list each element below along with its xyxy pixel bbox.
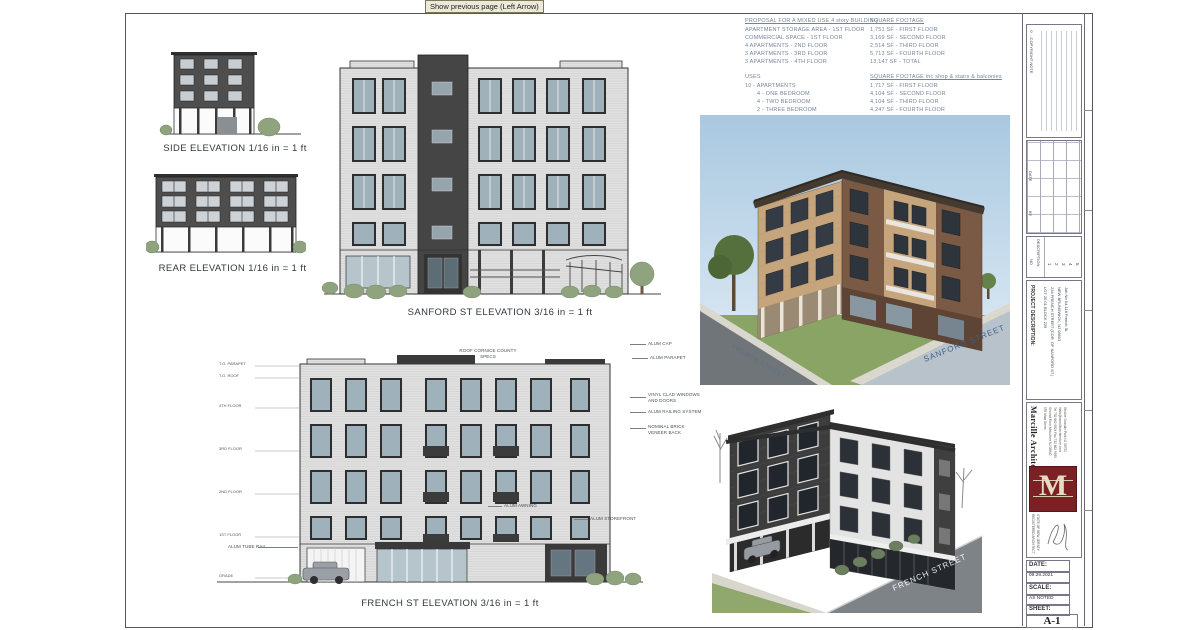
copyright-fine-print xyxy=(1041,31,1077,131)
copyright-note-box: © - COPYRIGHT NOTE xyxy=(1026,24,1082,138)
firm-address-line: Tel 732 662 0824 Fax 732 662 9935 xyxy=(1053,407,1057,458)
copyright-note-label: © - COPYRIGHT NOTE xyxy=(1029,29,1034,73)
project-description-heading: PROJECT DESCRIPTION: xyxy=(1029,285,1035,346)
titleblock-divider xyxy=(1022,13,1023,626)
note-line: 4 - TWO BEDROOM xyxy=(757,98,867,106)
drawing-sheet-viewer: Show previous page (Left Arrow) PROPOSAL… xyxy=(0,0,1200,630)
project-line: 234 FRENCH STREET (COR. OF SANFORD ST.) xyxy=(1050,287,1055,376)
side-elevation-caption: SIDE ELEVATION 1/16 in = 1 ft xyxy=(150,143,320,154)
french-elevation-drawing: T.O. PARAPET T.O. ROOF 4TH FLOOR 3RD FLO… xyxy=(215,346,645,598)
svg-text:T.O. PARAPET: T.O. PARAPET xyxy=(219,361,246,366)
note-line: COMMERCIAL SPACE - 1ST FLOOR xyxy=(745,34,867,42)
margin-tick xyxy=(1084,310,1092,311)
note-line: APARTMENT STORAGE AREA - 1ST FLOOR xyxy=(745,26,867,34)
svg-text:1ST FLOOR: 1ST FLOOR xyxy=(219,532,241,537)
note-line: 4,247 SF - FOURTH FLOOR xyxy=(870,106,1020,114)
svg-text:3RD FLOOR: 3RD FLOOR xyxy=(219,446,242,451)
proposal-notes: PROPOSAL FOR A MIXED USE 4 story BUILDIN… xyxy=(745,17,867,122)
date-value: 09.28.2021 xyxy=(1026,571,1070,583)
note-line: 4 APARTMENTS - 2ND FLOOR xyxy=(745,42,867,50)
no-header: NO xyxy=(1029,259,1034,265)
note-line: 5,713 SF - FOURTH FLOOR xyxy=(870,50,1020,58)
firm-logo: M xyxy=(1029,466,1077,512)
sanford-elevation-drawing xyxy=(320,48,665,304)
svg-text:4TH FLOOR: 4TH FLOOR xyxy=(219,403,242,408)
margin-tick xyxy=(1084,410,1092,411)
note-line: 4 - ONE BEDROOM xyxy=(757,90,867,98)
svg-text:2ND FLOOR: 2ND FLOOR xyxy=(219,489,242,494)
square-footage-notes: SQUARE FOOTAGE 1,751 SF - FIRST FLOOR 3,… xyxy=(870,17,1020,122)
note-line: 4,104 SF - THIRD FLOOR xyxy=(870,98,1020,106)
note-line: 2 - THREE BEDROOM xyxy=(757,106,867,114)
note-line: 13,147 SF - TOTAL xyxy=(870,58,1020,66)
svg-text:GRADE: GRADE xyxy=(219,573,234,578)
annotation-storefront: ALUM STOREFRONT xyxy=(590,516,636,522)
annotation-vinyl-windows: VINYL CLAD WINDOWS AND DOORS xyxy=(648,392,706,403)
rev-row-number: 4 xyxy=(1068,263,1073,266)
rear-elevation-caption: REAR ELEVATION 1/16 in = 1 ft xyxy=(140,263,325,274)
rev-row-number: 5 xyxy=(1075,263,1080,266)
sqft-inc-title: SQUARE FOOTAGE inc shop & stairs & balco… xyxy=(870,73,1020,81)
proposal-title: PROPOSAL FOR A MIXED USE 4 story BUILDIN… xyxy=(745,17,867,25)
note-line: 4,104 SF - SECOND FLOOR xyxy=(870,90,1020,98)
note-line: 1,751 SF - FIRST FLOOR xyxy=(870,26,1020,34)
sanford-elevation-caption: SANFORD ST ELEVATION 3/16 in = 1 ft xyxy=(385,307,615,318)
revision-by-header: BY xyxy=(1028,211,1033,216)
rev-row-number: 3 xyxy=(1061,263,1066,266)
sheet-number: A-1 xyxy=(1026,614,1078,628)
registered-line: REGISTERED ARCHITECT xyxy=(1031,514,1035,554)
revision-no-table: NO DESCRIPTION 1 2 3 4 5 xyxy=(1026,236,1082,278)
note-line: 2,514 SF - THIRD FLOOR xyxy=(870,42,1020,50)
titleblock-margin-line xyxy=(1084,13,1085,626)
sanford-street-rendering: SANFORD STREET FRENCH STREET xyxy=(700,115,1010,385)
note-line: 3 APARTMENTS - 3RD FLOOR xyxy=(745,50,867,58)
annotation-alum-parapet: ALUM PARAPET xyxy=(650,355,686,361)
annotation-brick-veneer: NOMINAL BRICK VENEER BACK xyxy=(648,424,698,435)
firm-logo-letter: M xyxy=(1030,469,1076,503)
side-elevation-drawing xyxy=(157,46,307,144)
registered-line: STATE OF NEW JERSEY xyxy=(1036,514,1040,551)
margin-tick xyxy=(1084,110,1092,111)
annotation-roof-cornice: ROOF CORNICE COUNTY SPECS xyxy=(455,348,521,359)
svg-text:T.O. ROOF: T.O. ROOF xyxy=(219,373,240,378)
awning xyxy=(375,542,470,549)
firm-address-line: Second Floor Metuchen NJ 08840 xyxy=(1048,407,1052,455)
annotation-alum-cap: ALUM CAP xyxy=(648,341,672,347)
note-line: 10 - APARTMENTS xyxy=(745,82,867,90)
firm-address-line: mark@marcillearchitecture.com xyxy=(1058,407,1062,452)
project-line: LOT 20.01 BLOCK 229 xyxy=(1043,287,1048,328)
rear-elevation-drawing xyxy=(146,170,306,262)
description-header: DESCRIPTION xyxy=(1036,239,1041,266)
project-description-box: PROJECT DESCRIPTION: LOT 20.01 BLOCK 229… xyxy=(1026,280,1082,400)
note-line: 3 APARTMENTS - 4TH FLOOR xyxy=(745,58,867,66)
note-line: 3,169 SF - SECOND FLOOR xyxy=(870,34,1020,42)
margin-tick xyxy=(1084,510,1092,511)
bush xyxy=(258,118,280,136)
revision-table: DATE BY xyxy=(1026,140,1082,234)
rev-row-number: 1 xyxy=(1047,263,1052,266)
note-line: 1,717 SF - FIRST FLOOR xyxy=(870,82,1020,90)
margin-tick xyxy=(1084,210,1092,211)
architect-signature xyxy=(1044,514,1072,552)
french-elevation-caption: FRENCH ST ELEVATION 3/16 in = 1 ft xyxy=(335,598,565,609)
project-line: Job No 04-116 French St xyxy=(1064,287,1069,331)
revision-date-header: DATE xyxy=(1028,171,1033,181)
uses-title: USES xyxy=(745,73,867,81)
french-street-rendering: FRENCH STREET xyxy=(712,388,982,613)
project-line: NEW BRUNSWICK, NJ 08903 xyxy=(1057,287,1062,341)
annotation-awning: ALUM AWNING xyxy=(504,503,537,509)
firm-address-line: 555 Main Street xyxy=(1043,407,1047,430)
previous-page-tooltip[interactable]: Show previous page (Left Arrow) xyxy=(425,0,544,13)
rev-row-number: 2 xyxy=(1054,263,1059,266)
annotation-railing: ALUM RAILING SYSTEM xyxy=(648,409,701,415)
sqft-title: SQUARE FOOTAGE xyxy=(870,17,1020,25)
building-left-face xyxy=(758,181,842,339)
firm-address-line: 9th Ave Seaside Park NJ 08752 xyxy=(1063,407,1067,452)
